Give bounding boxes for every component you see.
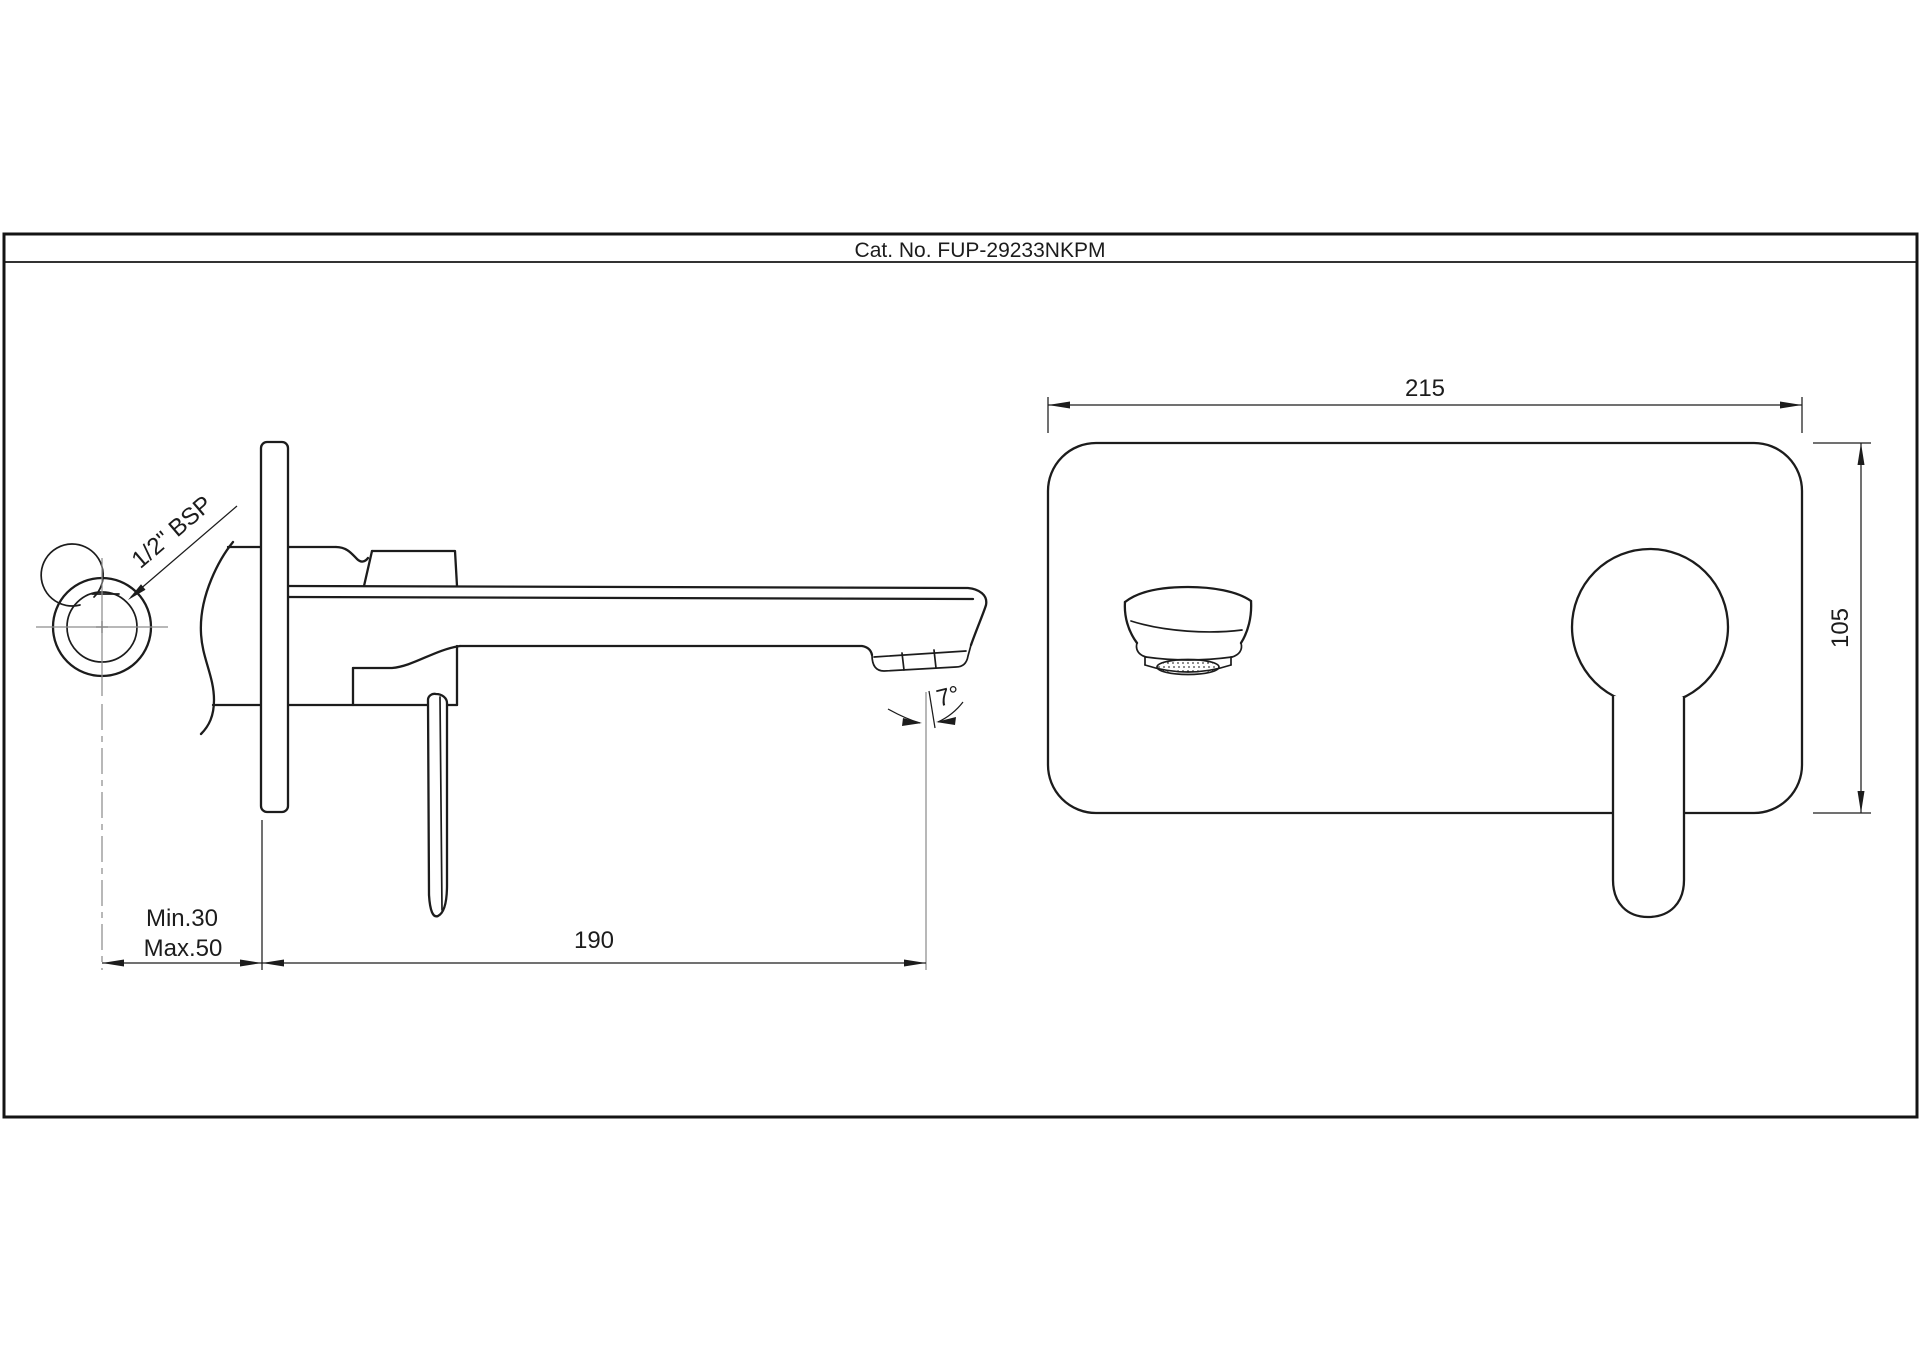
height-arrow-top (1858, 443, 1865, 465)
aerator-outline-side (872, 645, 971, 671)
drawing-sheet: Cat. No. FUP-29233NKPM (0, 0, 1920, 1356)
wall-plate-side (261, 442, 288, 812)
depth-min-label: Min.30 (146, 905, 218, 932)
thread-arc (41, 544, 103, 606)
cartridge-top-edge (372, 551, 457, 586)
minmax-arrow-left (102, 960, 124, 967)
aerator-top-line (874, 651, 966, 657)
spout-top-second-line (288, 597, 973, 599)
width-arrow-left (1048, 402, 1070, 409)
thread-callout: 1/2" BSP (127, 491, 237, 600)
cartridge-housing-side (336, 547, 457, 586)
spout-top-and-nose (288, 586, 986, 645)
side-view: 1/2" BSP 7° Min.30 Max.50 190 (36, 442, 986, 970)
width-arrow-right (1780, 402, 1802, 409)
depth-max-label: Max.50 (144, 935, 223, 962)
spout-side (288, 586, 986, 705)
housing-neck-curve (353, 646, 460, 668)
width-dimension: 215 (1048, 375, 1802, 433)
plate-height-label: 105 (1827, 608, 1854, 648)
width-extension-lines (1048, 397, 1802, 433)
height-dimension: 105 (1813, 443, 1871, 813)
reach-arrow-left (262, 960, 284, 967)
height-arrow-bottom (1858, 791, 1865, 813)
front-view: 215 105 (1048, 375, 1871, 917)
plate-width-label: 215 (1405, 375, 1445, 402)
angle-arrow-left (902, 718, 922, 726)
cartridge-front-slant (364, 551, 372, 586)
spout-reach-label: 190 (574, 927, 614, 954)
reach-arrow-right (904, 960, 926, 967)
body-dip-curve (336, 547, 368, 562)
side-view-dimensions: Min.30 Max.50 190 (102, 820, 926, 970)
spout-underside (460, 646, 872, 655)
lever-front-fill (1613, 696, 1684, 917)
spray-angle-annotation: 7° (888, 681, 963, 970)
minmax-arrow-right (240, 960, 262, 967)
angle-tilted-line (929, 691, 935, 728)
inwall-body (201, 542, 457, 734)
technical-drawing-canvas: Cat. No. FUP-29233NKPM (0, 0, 1920, 1356)
handle-lever-side (428, 694, 447, 917)
lever-blade-outline (428, 694, 447, 917)
spray-angle-label: 7° (934, 681, 963, 713)
catalog-number-label: Cat. No. FUP-29233NKPM (855, 239, 1106, 262)
